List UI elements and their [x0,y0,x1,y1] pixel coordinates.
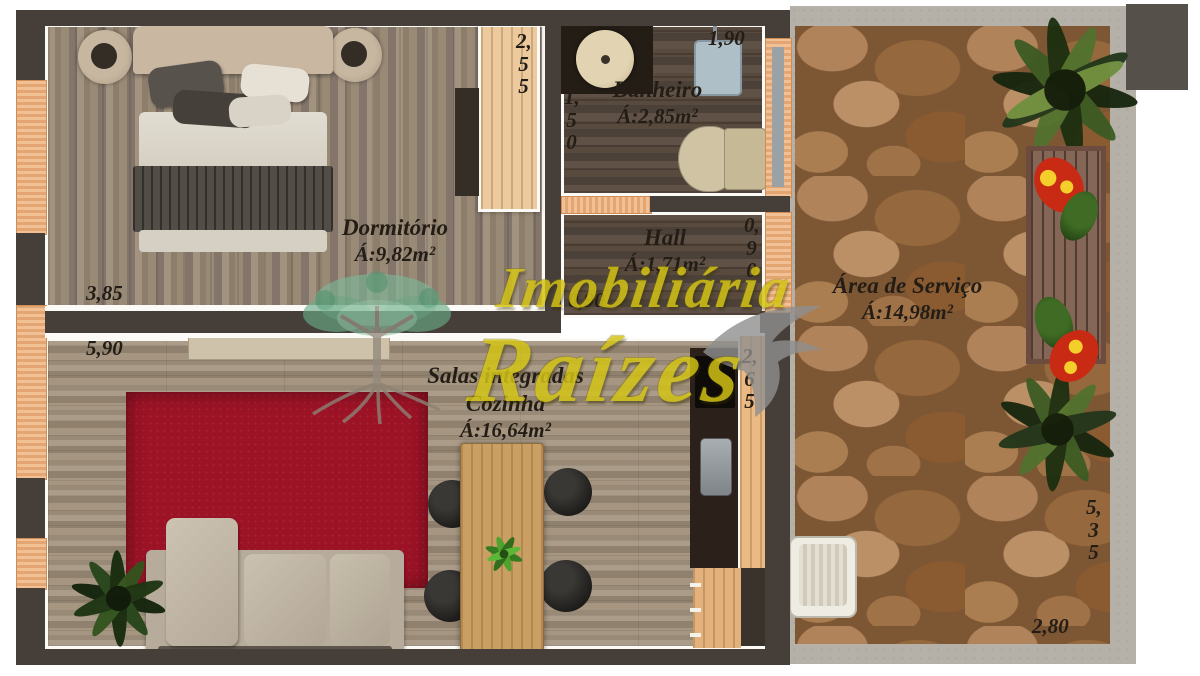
bed-pillow-white-2 [228,94,292,128]
nightstand-left-top [91,43,117,69]
nightstand-right-top [341,41,367,67]
dining-chair-4 [540,560,592,612]
watermark-brand-line1: Imobiliária [493,254,795,321]
window-pane [772,47,784,187]
cabinet-handle-2 [690,608,701,612]
nightstand-left [78,30,132,84]
dim-banheiro-width: 1,90 [708,26,745,51]
bathroom-sink-drain [601,55,610,64]
bathroom-door-threshold [561,196,652,214]
label-servico-name: Área de Serviço [815,272,1000,300]
kitchen-sink [700,438,732,496]
label-dormitorio-area: Á:9,82m² [315,242,475,268]
window-living-2 [16,538,47,590]
watermark-tree-logo [285,266,470,428]
dim-banheiro-height: 1,50 [564,86,579,154]
label-servico-area: Á:14,98m² [815,300,1000,326]
kitchen-appliance-panel [741,568,765,646]
bed [133,26,333,252]
wall-right-mid [765,196,790,212]
dim-dormitorio-width: 3,85 [86,281,123,306]
bedroom-desk [455,88,479,196]
wall-bathroom-left [545,10,561,212]
label-hall-name: Hall [600,224,730,252]
wall-bottom [16,649,790,665]
dim-sala-width: 5,90 [86,336,123,361]
label-banheiro: Banheiro Á:2,85m² [595,76,720,130]
window-bathroom-service [765,38,792,198]
sofa-cushion-middle [244,554,326,646]
wall-left-seg3 [16,478,45,538]
sofa [146,518,404,654]
wall-top [38,10,790,26]
nightstand-right [328,28,382,82]
window-bedroom [16,80,47,235]
wall-right-top [765,10,790,38]
wall-left-seg2 [16,233,45,305]
laundry-tub-ridges [799,544,847,606]
sofa-cushion-right [330,554,390,646]
wall-bathroom-bottom [650,196,765,212]
dim-servico-width: 2,80 [1032,614,1069,639]
watermark-brand-line2: Raízes [462,316,752,424]
label-banheiro-name: Banheiro [595,76,720,104]
label-banheiro-area: Á:2,85m² [595,104,720,130]
sofa-cushion-left-tall [166,518,238,646]
laundry-tub [789,536,857,618]
label-dormitorio-name: Dormitório [315,214,475,242]
bed-foot-sheet [139,230,327,252]
living-room-plant [66,546,171,651]
cabinet-handle-1 [690,583,701,587]
label-dormitorio: Dormitório Á:9,82m² [315,214,475,268]
toilet-tank [724,128,766,190]
dining-chair-3 [544,468,592,516]
wall-left-seg1 [16,10,45,80]
label-servico: Área de Serviço Á:14,98m² [815,272,1000,326]
window-living-1 [16,305,47,480]
table-plant [482,532,526,576]
dim-dormitorio-height: 2,55 [516,30,531,98]
service-plant-bottom [990,362,1125,497]
dim-servico-height: 5,35 [1086,496,1101,564]
cabinet-handle-3 [690,633,701,637]
bed-blanket [133,166,333,232]
floorplan-render: Dormitório Á:9,82m² Banheiro Á:2,85m² Ha… [0,0,1200,676]
